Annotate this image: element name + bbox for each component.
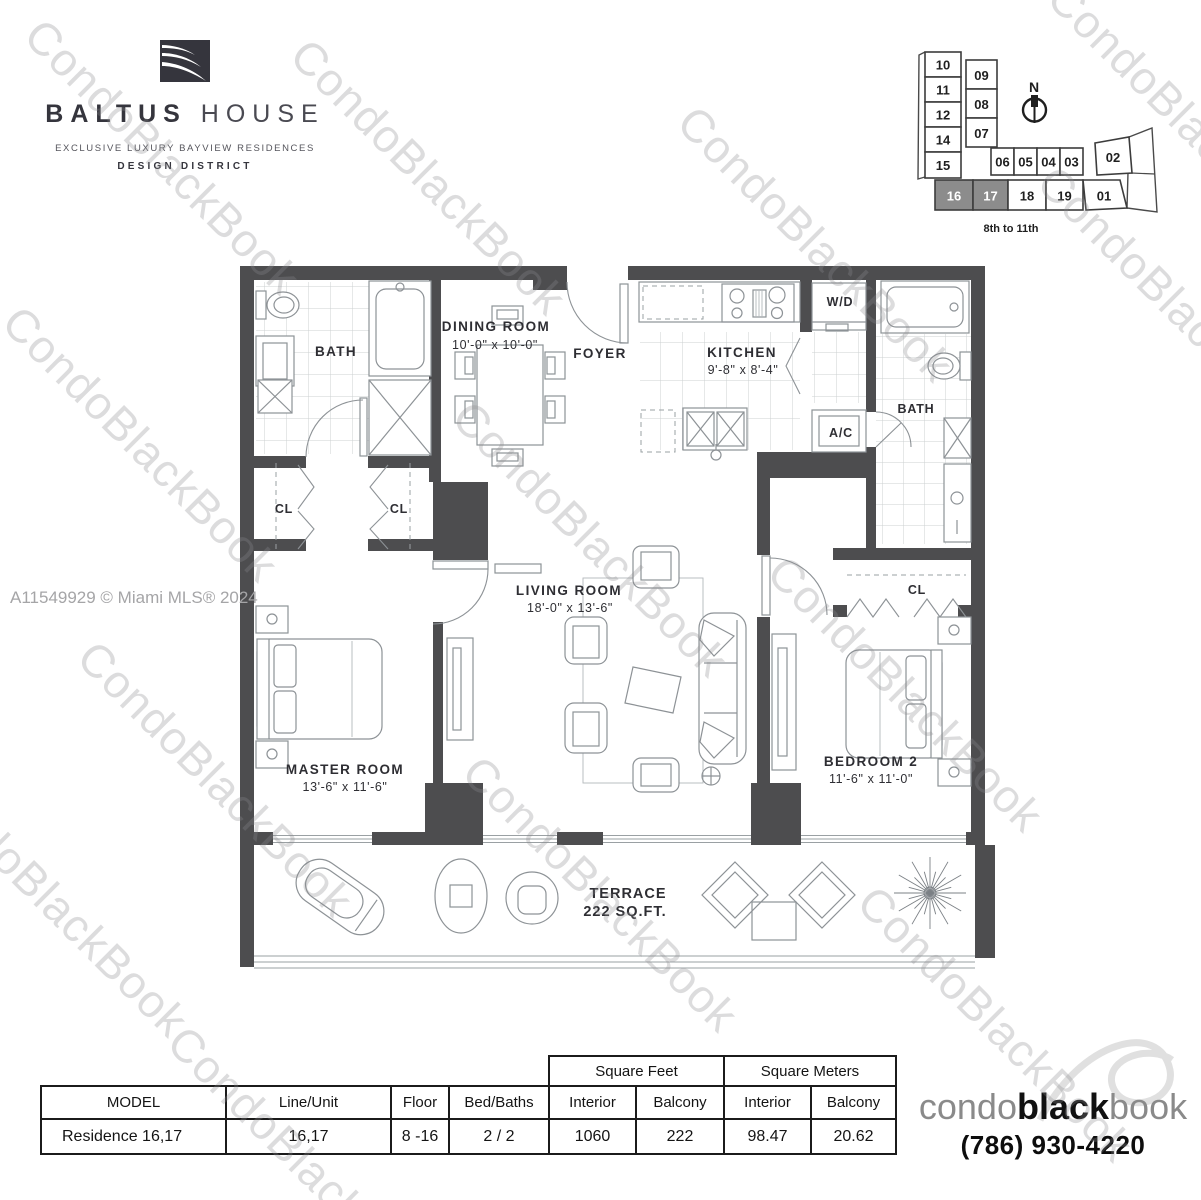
nightstand — [256, 741, 288, 768]
col-header-interior-sf: Interior — [548, 1085, 637, 1120]
col-header-model: MODEL — [40, 1085, 227, 1120]
bed — [257, 639, 382, 739]
window — [603, 833, 751, 845]
logo-tagline: EXCLUSIVE LUXURY BAYVIEW RESIDENCES — [40, 143, 330, 154]
phone-number: (786) 930-4220 — [908, 1130, 1198, 1161]
coffee-table — [625, 667, 681, 713]
toilet-tank — [256, 291, 266, 319]
plant — [894, 857, 966, 929]
condoblackbook-logo: condoblackbook — [908, 1086, 1198, 1128]
spec-table: Square Feet Square Meters MODEL Line/Uni… — [40, 1055, 900, 1155]
label-living: LIVING ROOM — [516, 583, 622, 598]
headboard — [257, 639, 269, 739]
headboard — [931, 650, 942, 758]
floor-plan: BATH DINING ROOM 10'-0" x 10'-0" FOYER K… — [230, 255, 1015, 990]
label-terrace-dims: 222 SQ.FT. — [583, 904, 666, 920]
building-keyplan: 10 11 12 14 15 09 08 07 06 05 04 03 02 1… — [903, 46, 1161, 244]
master-door-leaf — [433, 561, 488, 569]
group-header-square-meters: Square Meters — [723, 1055, 897, 1087]
col-header-bed-baths: Bed/Baths — [448, 1085, 550, 1120]
entry-door-leaf — [620, 284, 628, 343]
cell-model: Residence 16,17 — [40, 1118, 227, 1155]
cell-interior-sf: 1060 — [548, 1118, 637, 1155]
cell-bed-baths: 2 / 2 — [448, 1118, 550, 1155]
label-dining: DINING ROOM — [442, 319, 550, 334]
footer-brand: condoblackbook (786) 930-4220 — [908, 1086, 1198, 1161]
label-living-dims: 18'-0" x 13'-6" — [527, 601, 613, 615]
baltus-house-logo: BALTUS HOUSE EXCLUSIVE LUXURY BAYVIEW RE… — [40, 40, 330, 172]
sail-logo-icon — [160, 40, 210, 82]
keyplan-unit: 11 — [936, 83, 950, 98]
faucet — [711, 450, 721, 460]
keyplan-second-column: 09 08 07 — [966, 60, 997, 147]
keyplan-left-column: 10 11 12 14 15 — [925, 52, 961, 178]
keyplan-unit: 04 — [1041, 155, 1056, 170]
label-terrace: TERRACE — [589, 886, 666, 902]
bedroom2-door-swing — [770, 558, 827, 615]
round-chair — [506, 872, 558, 924]
chaise-lounge — [287, 851, 392, 944]
bath1-door-leaf — [360, 398, 367, 456]
mls-credit: A11549929 © Miami MLS® 2024 — [10, 588, 258, 608]
label-bedroom2: BEDROOM 2 — [824, 754, 918, 769]
keyplan-unit: 07 — [974, 126, 988, 141]
nightstand — [938, 617, 971, 644]
label-bath1: BATH — [315, 344, 357, 359]
armchair — [565, 617, 607, 664]
compass-north-label: N — [1029, 79, 1039, 95]
kitchen-counter — [639, 282, 800, 322]
label-cl3: CL — [908, 583, 926, 597]
keyplan-unit: 09 — [974, 68, 988, 83]
label-ac: A/C — [829, 426, 853, 440]
logo-district: DESIGN DISTRICT — [40, 161, 330, 172]
window — [801, 833, 966, 845]
keyplan-unit: 08 — [974, 97, 988, 112]
col-header-floor: Floor — [390, 1085, 450, 1120]
terrace-railing — [254, 956, 975, 968]
keyplan-unit: 18 — [1020, 189, 1034, 204]
entry-door-swing — [567, 282, 628, 343]
keyplan-unit: 06 — [995, 155, 1009, 170]
label-kitchen: KITCHEN — [707, 345, 777, 360]
cell-balcony-sf: 222 — [635, 1118, 725, 1155]
group-header-square-feet: Square Feet — [548, 1055, 725, 1087]
window — [273, 833, 372, 845]
brand-part-black: black — [1017, 1086, 1109, 1127]
bedroom2-door-leaf — [762, 556, 770, 615]
oval-lounger — [435, 859, 487, 933]
cell-line-unit: 16,17 — [225, 1118, 392, 1155]
col-header-balcony-sm: Balcony — [810, 1085, 897, 1120]
brand-part-condo: condo — [919, 1086, 1017, 1127]
armchair — [633, 758, 679, 792]
master-door-swing — [433, 569, 488, 624]
dresser — [447, 638, 473, 740]
keyplan-unit: 02 — [1106, 150, 1120, 165]
label-dining-dims: 10'-0" x 10'-0" — [452, 338, 538, 352]
window — [483, 833, 557, 845]
cell-balcony-sm: 20.62 — [810, 1118, 897, 1155]
keyplan-unit: 15 — [936, 158, 950, 173]
keyplan-unit: 10 — [936, 58, 950, 73]
nightstand — [938, 759, 971, 786]
brand-part-book: book — [1109, 1086, 1187, 1127]
console — [495, 564, 541, 573]
keyplan-bottom-row: 16 17 18 19 01 — [935, 180, 1127, 210]
logo-name: BALTUS HOUSE — [40, 100, 330, 129]
keyplan-unit: 03 — [1064, 155, 1078, 170]
dresser — [772, 634, 796, 770]
label-foyer: FOYER — [573, 346, 627, 361]
label-wd: W/D — [827, 295, 854, 309]
bed — [846, 650, 942, 758]
keyplan-unit: 01 — [1097, 189, 1111, 204]
bathtub — [369, 281, 431, 376]
label-cl2: CL — [390, 502, 408, 516]
col-header-interior-sm: Interior — [723, 1085, 812, 1120]
col-header-line-unit: Line/Unit — [225, 1085, 392, 1120]
logo-name-secondary: HOUSE — [201, 100, 325, 128]
terrace-table — [752, 902, 796, 940]
bathtub — [881, 281, 969, 333]
logo-name-primary: BALTUS — [45, 100, 187, 128]
label-cl1: CL — [275, 502, 293, 516]
col-header-balcony-sf: Balcony — [635, 1085, 725, 1120]
label-bedroom2-dims: 11'-6" x 11'-0" — [829, 772, 913, 786]
compass-icon: N — [1023, 79, 1046, 123]
label-kitchen-dims: 9'-8" x 8'-4" — [708, 363, 779, 377]
keyplan-unit-highlighted: 17 — [983, 189, 997, 204]
keyplan-unit: 05 — [1018, 155, 1032, 170]
label-bath2: BATH — [898, 402, 935, 416]
cell-floor: 8 -16 — [390, 1118, 450, 1155]
sofa — [699, 613, 746, 764]
cell-interior-sm: 98.47 — [723, 1118, 812, 1155]
page: BALTUS HOUSE EXCLUSIVE LUXURY BAYVIEW RE… — [0, 0, 1201, 1200]
nightstand — [256, 606, 288, 633]
dining-table — [477, 345, 543, 445]
keyplan-unit: 12 — [936, 108, 950, 123]
watermark-text: CondoBlackBook — [0, 750, 199, 1048]
kitchen-island — [683, 408, 747, 450]
keyplan-unit-highlighted: 16 — [947, 189, 961, 204]
keyplan-unit: 14 — [936, 133, 951, 148]
keyplan-caption: 8th to 11th — [983, 223, 1038, 235]
toilet-tank — [960, 352, 971, 380]
keyplan-middle-row: 06 05 04 03 02 — [991, 137, 1132, 175]
label-master: MASTER ROOM — [286, 762, 404, 777]
keyplan-unit: 19 — [1057, 189, 1071, 204]
label-master-dims: 13'-6" x 11'-6" — [303, 780, 388, 794]
